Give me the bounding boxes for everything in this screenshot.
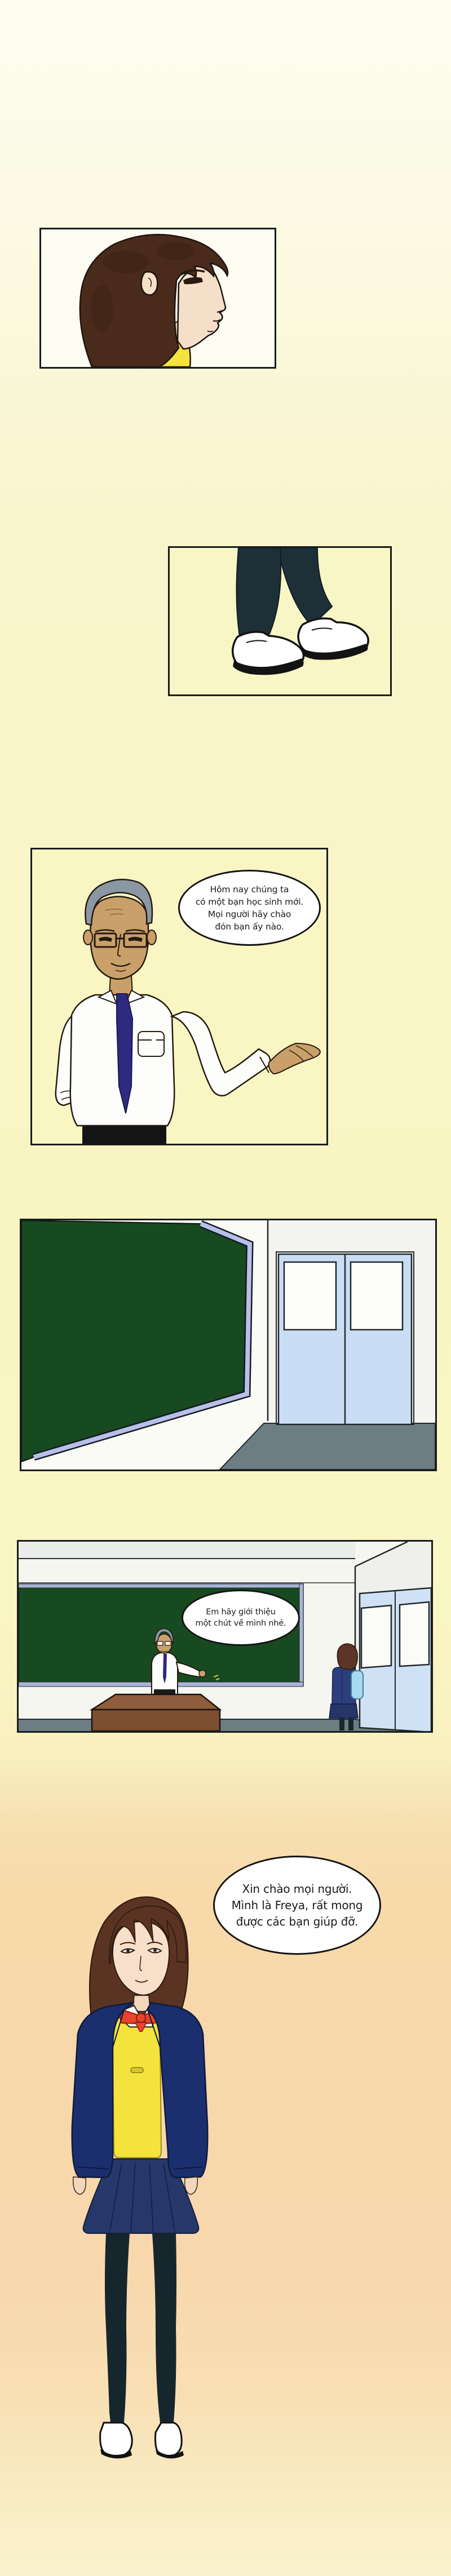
floor [220,1423,435,1470]
panel-classroom [20,1219,437,1471]
walking-feet-art [170,548,390,694]
panel-girl-profile [39,228,276,369]
speech-line: được các bạn giúp đỡ. [236,1914,359,1930]
speech-line: có một bạn học sinh mới. [196,896,303,908]
speech-line: Xin chào mọi người. [242,1881,352,1897]
comic-page: Hôm nay chúng ta có một bạn học sinh mới… [0,0,451,2576]
speech-line: Mọi người hãy chào [208,908,291,920]
panel-walking-feet [168,546,392,696]
double-door [276,1252,414,1424]
freya-figure [56,1888,209,2463]
speech-line: Mình là Freya, rất mong [232,1897,363,1914]
freya-art [56,1888,209,2463]
speech-bubble-teacher-prompt: Em hãy giới thiệu một chút về mình nhé. [182,1590,300,1646]
classroom-art [21,1220,435,1470]
speech-line: một chút về mình nhé. [196,1618,286,1629]
teacher-desk [92,1694,220,1731]
speech-line: Em hãy giới thiệu [206,1606,276,1618]
speech-bubble-freya-greeting: Xin chào mọi người. Mình là Freya, rất m… [213,1856,381,1955]
speech-line: đón bạn ấy nào. [215,920,284,933]
speech-bubble-teacher-intro: Hôm nay chúng ta có một bạn học sinh mới… [178,870,321,946]
girl-profile-art [41,229,275,367]
speech-line: Hôm nay chúng ta [210,883,289,896]
classroom-door [360,1588,431,1731]
